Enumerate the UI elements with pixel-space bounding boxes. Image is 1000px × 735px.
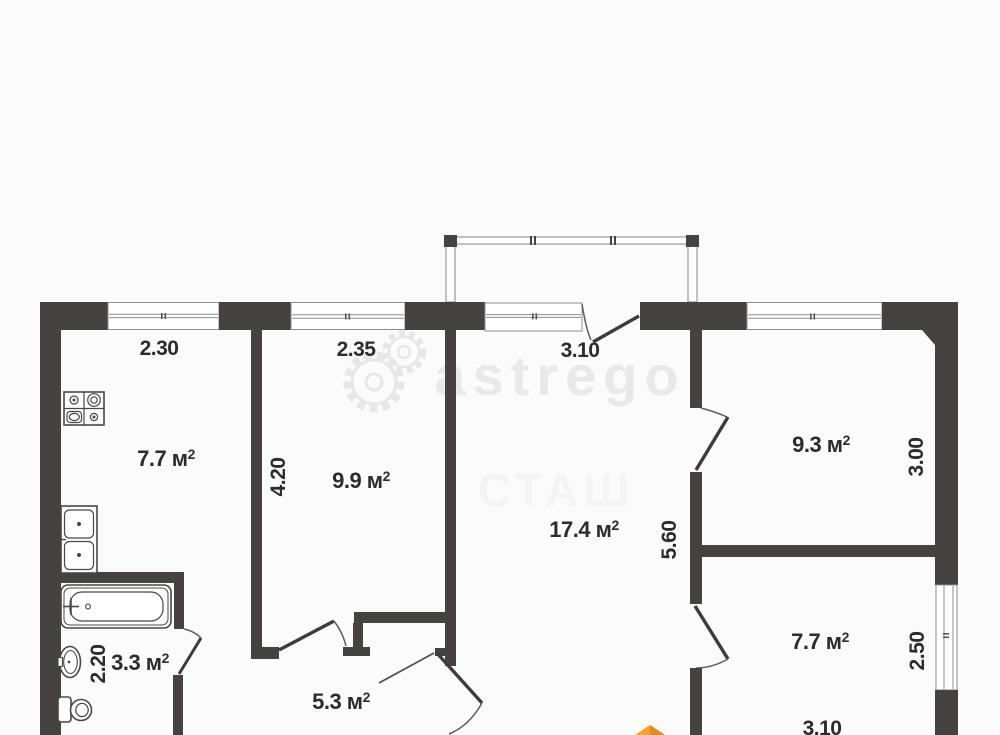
svg-text:3.3 м2: 3.3 м2 (111, 650, 169, 675)
svg-text:5.60: 5.60 (658, 521, 681, 560)
svg-text:4.20: 4.20 (267, 458, 290, 497)
svg-text:2.50: 2.50 (906, 632, 929, 671)
svg-text:9.9 м2: 9.9 м2 (332, 468, 390, 493)
svg-text:2.30: 2.30 (140, 337, 179, 360)
svg-text:17.4 м2: 17.4 м2 (549, 517, 619, 542)
svg-text:9.3 м2: 9.3 м2 (792, 432, 850, 457)
svg-text:3.00: 3.00 (905, 438, 928, 477)
svg-text:СТАШ: СТАШ (478, 464, 635, 516)
svg-text:3.10: 3.10 (803, 717, 842, 735)
svg-text:5.3 м2: 5.3 м2 (312, 689, 370, 714)
svg-text:3.10: 3.10 (561, 339, 600, 362)
svg-text:2.35: 2.35 (337, 338, 377, 361)
svg-text:7.7 м2: 7.7 м2 (137, 446, 195, 471)
svg-text:7.7 м2: 7.7 м2 (791, 629, 849, 654)
svg-text:2.20: 2.20 (87, 645, 110, 684)
